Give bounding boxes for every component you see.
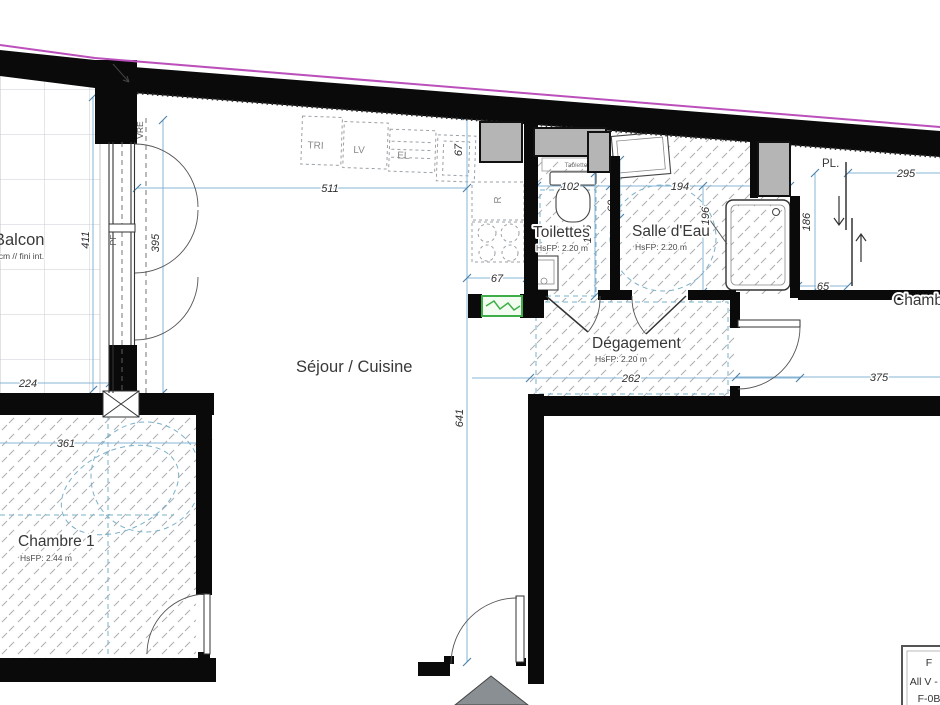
tablette-label: Tablette bbox=[565, 162, 588, 169]
window-swing-arc bbox=[135, 277, 198, 340]
title-block-row1: F bbox=[926, 657, 932, 669]
window-pf bbox=[109, 118, 198, 395]
electrical-panel-box bbox=[482, 296, 522, 316]
hob-box bbox=[472, 222, 524, 262]
wall-segment bbox=[524, 290, 548, 300]
dim-361: 361 bbox=[57, 438, 75, 450]
dim-67-counter: 67 bbox=[453, 143, 465, 156]
door-leaf bbox=[204, 594, 210, 654]
wall-segment bbox=[610, 156, 620, 296]
wall-segment bbox=[790, 196, 800, 298]
room-ceiling-degagement: HsFP: 2.20 m bbox=[595, 354, 647, 364]
shower-tray-inner bbox=[731, 205, 785, 285]
dim-411: 411 bbox=[80, 231, 92, 249]
dim-375: 375 bbox=[870, 372, 889, 384]
title-block: F All V - N F-0B bbox=[902, 646, 940, 705]
appliance-tri-label: TRI bbox=[307, 140, 323, 152]
hob-burner bbox=[479, 245, 495, 261]
shower-drain bbox=[773, 209, 780, 216]
hob-burner bbox=[478, 224, 496, 242]
room-label-placard: PL. bbox=[822, 158, 839, 170]
door-leaf bbox=[516, 596, 524, 662]
entry-door bbox=[451, 596, 524, 664]
hob-burner bbox=[501, 224, 519, 242]
room-label-chambre2: Chambre bbox=[893, 292, 940, 309]
dim-186: 186 bbox=[801, 212, 813, 231]
wall-segment bbox=[528, 394, 544, 684]
dim-395: 395 bbox=[150, 233, 162, 252]
fridge-label: R bbox=[493, 196, 504, 203]
arrow-up-icon bbox=[856, 234, 866, 262]
room-label-degagement: Dégagement bbox=[592, 335, 681, 352]
kitchen-counter-side: R bbox=[472, 182, 524, 262]
appliance-lv-box bbox=[343, 122, 389, 170]
title-block-row3: F-0B bbox=[918, 693, 940, 705]
dim-295: 295 bbox=[896, 168, 916, 180]
door-swing-arc bbox=[738, 327, 800, 389]
dim-262: 262 bbox=[621, 373, 640, 385]
room-label-toilettes: Toilettes bbox=[533, 224, 590, 241]
window-tag-pf: PF bbox=[108, 235, 118, 246]
wall-segment bbox=[688, 290, 736, 300]
dim-67-hob: 67 bbox=[491, 273, 504, 285]
floor-plan-canvas: TRI LV EL R Tablette bbox=[0, 0, 940, 705]
hob-burner bbox=[502, 245, 518, 261]
room-ceiling-toilettes: HsFP: 2.20 m bbox=[536, 243, 588, 253]
dim-194: 194 bbox=[671, 181, 689, 193]
appliance-el-label: EL bbox=[397, 150, 410, 161]
wall-segment bbox=[95, 60, 137, 144]
wall-segment bbox=[598, 290, 632, 300]
window-swing-arc bbox=[135, 144, 198, 207]
room-ceiling-chambre1: HsFP: 2.44 m bbox=[20, 553, 72, 563]
room-ceiling-salle-eau: HsFP: 2.20 m bbox=[635, 242, 687, 252]
placard-sliding-doors bbox=[834, 162, 866, 286]
room-label-balcon: Balcon bbox=[0, 231, 44, 249]
wall-segment bbox=[468, 294, 482, 318]
window-tag-vre: VRE bbox=[135, 121, 145, 139]
chambre2-door bbox=[738, 320, 800, 389]
window-transom bbox=[109, 224, 135, 232]
wall-segment bbox=[730, 386, 740, 396]
dim-102: 102 bbox=[561, 181, 579, 193]
electrical-panel bbox=[482, 296, 522, 316]
room-note-balcon: 0cm // fini int. bbox=[0, 251, 44, 261]
wall-segment bbox=[418, 662, 450, 676]
wall-segment bbox=[750, 140, 758, 198]
appliance-lv-label: LV bbox=[353, 145, 365, 156]
door-swing-arc bbox=[451, 598, 517, 664]
door-jamb bbox=[444, 656, 454, 664]
door-leaf bbox=[738, 320, 800, 327]
room-label-sejour: Séjour / Cuisine bbox=[296, 358, 412, 376]
duct bbox=[758, 142, 790, 196]
window-swing-arc bbox=[135, 210, 198, 273]
duct bbox=[480, 122, 522, 162]
wall-segment bbox=[536, 396, 940, 416]
arrow-down-icon bbox=[834, 196, 844, 225]
entry-arrow bbox=[455, 676, 528, 705]
room-label-chambre1: Chambre 1 bbox=[18, 533, 95, 550]
dim-224: 224 bbox=[18, 378, 37, 390]
dim-511: 511 bbox=[321, 183, 339, 195]
dim-641: 641 bbox=[454, 409, 466, 427]
title-block-row2: All V - N bbox=[910, 676, 940, 688]
kitchen-counter-top: TRI LV EL bbox=[300, 116, 476, 182]
room-label-salle-eau: Salle d'Eau bbox=[632, 223, 710, 240]
wall-segment bbox=[0, 658, 216, 682]
wall-segment bbox=[196, 415, 212, 595]
duct bbox=[588, 132, 610, 172]
